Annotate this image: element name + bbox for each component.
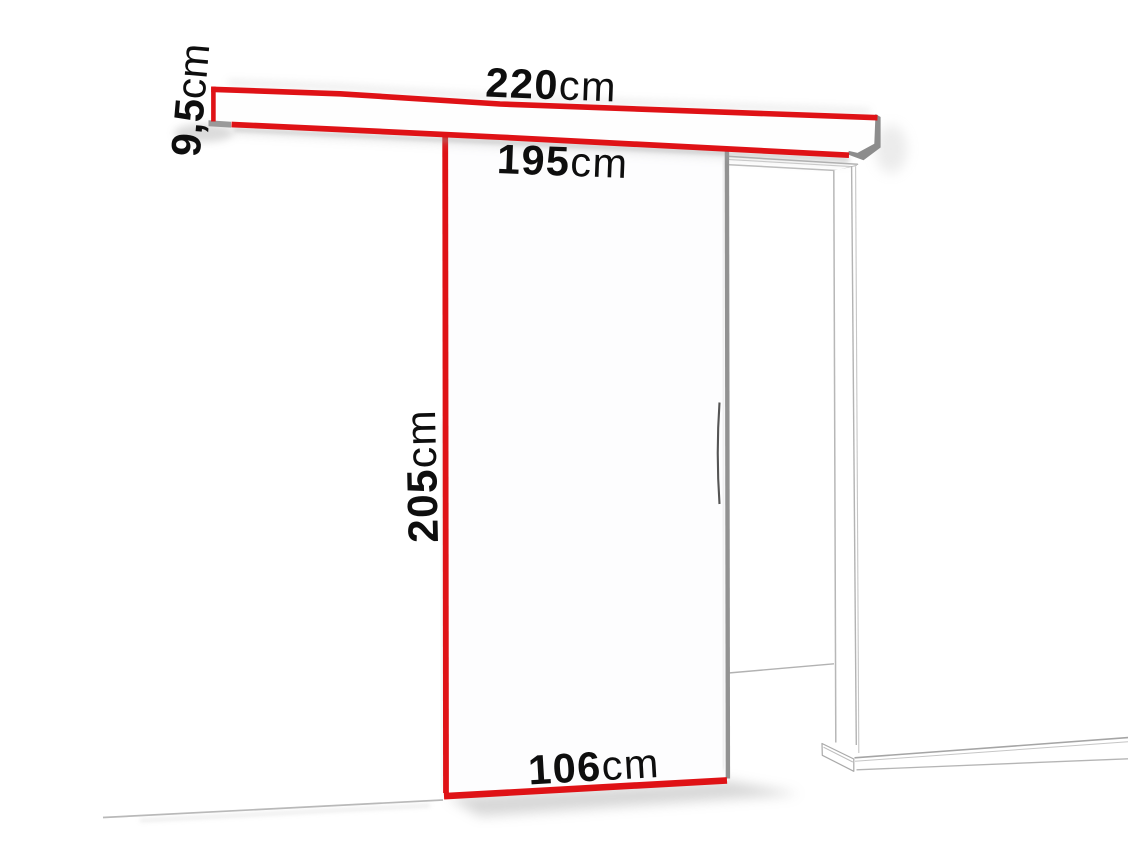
svg-text:205cm: 205cm <box>398 409 448 544</box>
svg-text:195cm: 195cm <box>496 135 629 187</box>
svg-text:220cm: 220cm <box>485 59 618 111</box>
svg-text:9,5cm: 9,5cm <box>162 42 219 159</box>
svg-text:106cm: 106cm <box>527 739 661 793</box>
